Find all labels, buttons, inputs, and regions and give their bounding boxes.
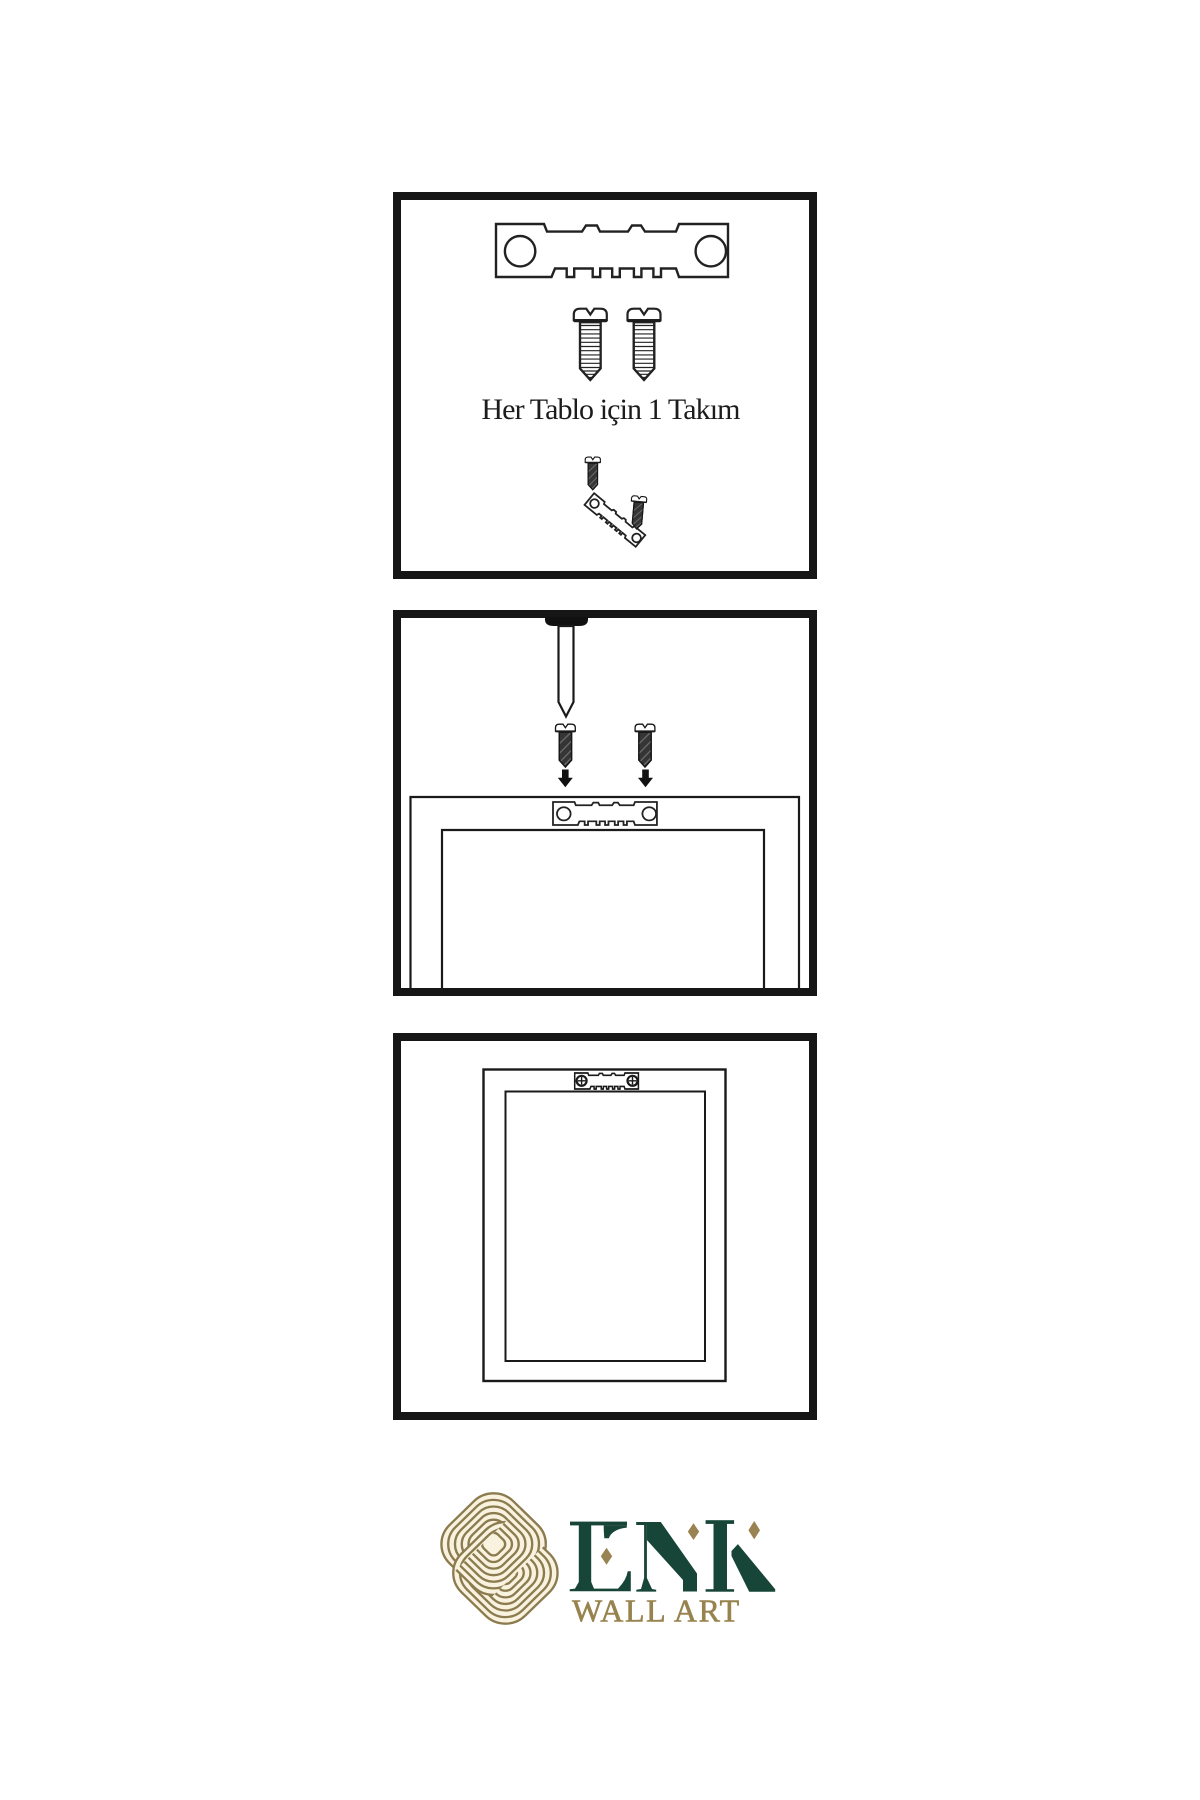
svg-text:WALL ART: WALL ART <box>572 1593 741 1629</box>
svg-text:Her Tablo için 1 Takım: Her Tablo için 1 Takım <box>481 393 740 426</box>
